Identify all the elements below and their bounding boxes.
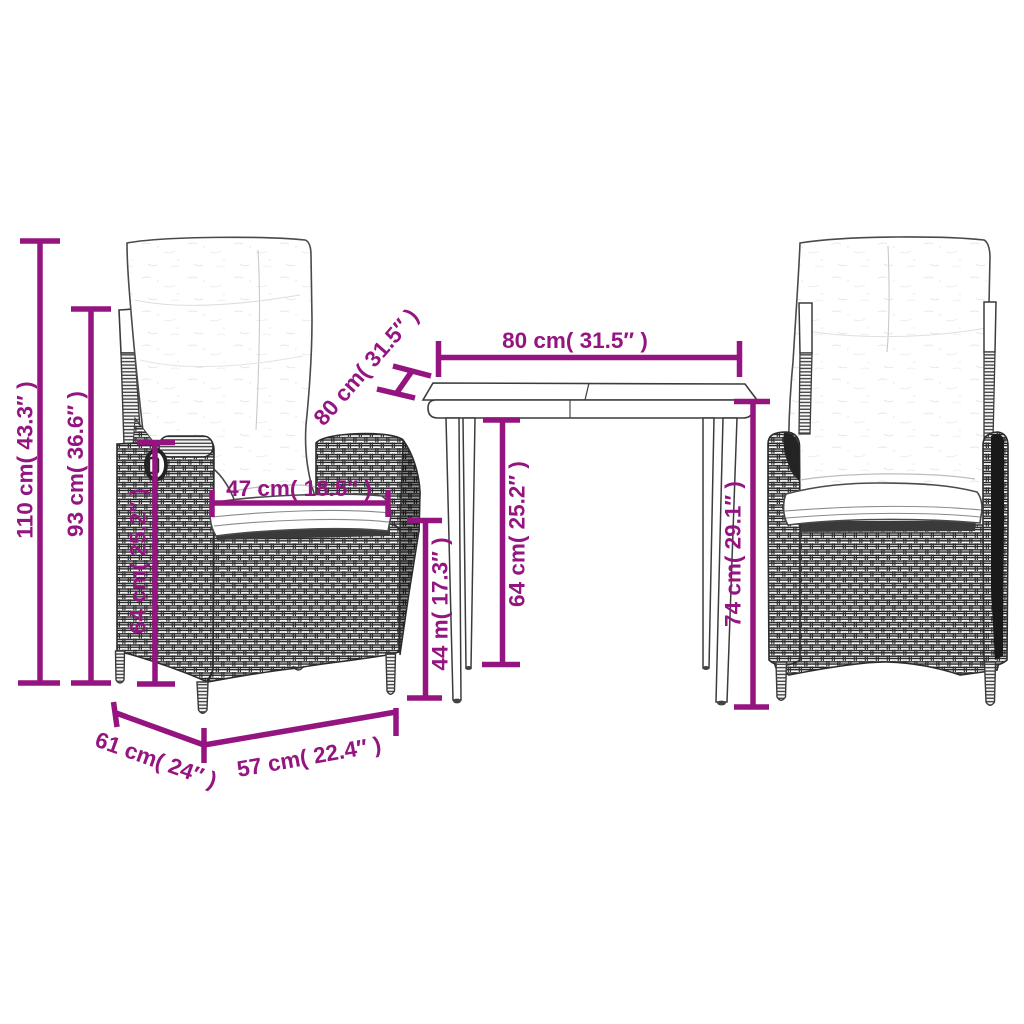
- svg-text:64 cm( 25.2″ ): 64 cm( 25.2″ ): [505, 461, 530, 607]
- svg-text:93 cm( 36.6″ ): 93 cm( 36.6″ ): [63, 391, 88, 537]
- svg-text:74 cm( 29.1″ ): 74 cm( 29.1″ ): [721, 481, 746, 627]
- svg-text:110 cm( 43.3″ ): 110 cm( 43.3″ ): [13, 381, 38, 538]
- svg-text:80 cm( 31.5″ ): 80 cm( 31.5″ ): [502, 328, 648, 353]
- svg-text:44 m( 17.3″ ): 44 m( 17.3″ ): [428, 537, 453, 670]
- svg-text:47 cm( 18.5″ ): 47 cm( 18.5″ ): [226, 476, 372, 501]
- svg-text:64 cm( 25.2″ ): 64 cm( 25.2″ ): [126, 488, 151, 634]
